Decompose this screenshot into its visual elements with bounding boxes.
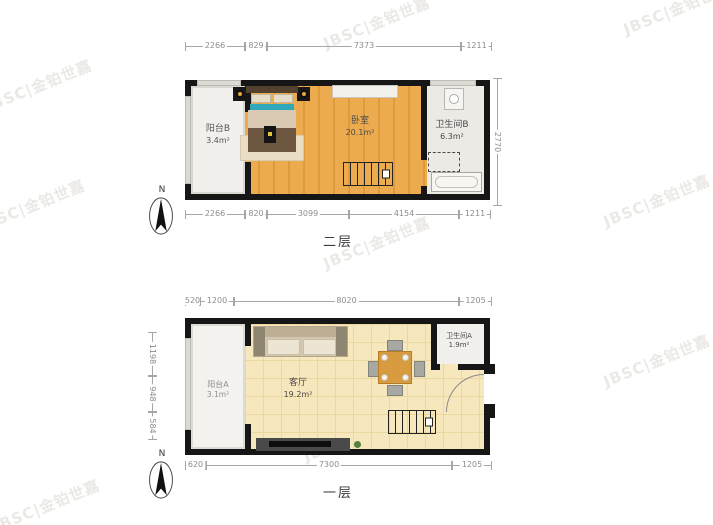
room-area: 3.4m² xyxy=(191,136,245,146)
dim-value: 1205 xyxy=(463,297,487,305)
dim-segment: 948 xyxy=(146,376,158,412)
lower-wall-balcony-top xyxy=(245,324,251,346)
nightstand-lamp-icon xyxy=(233,87,246,101)
room-area: 20.1m² xyxy=(318,128,402,138)
floor-label-1f: 一层 xyxy=(300,482,376,501)
lower-wall-bathroom-bottom-a xyxy=(431,364,440,370)
entry-frame-stub-top xyxy=(484,364,495,374)
lower-wall-balcony-bottom xyxy=(245,424,251,449)
dim-segment: 3099 xyxy=(267,208,349,220)
dim-value: 7373 xyxy=(352,42,376,50)
dining-table xyxy=(378,351,412,384)
dim-segment: 620 xyxy=(185,459,206,471)
upper-wall-balcony-bottom xyxy=(245,162,251,194)
compass-icon xyxy=(147,460,175,500)
dim-value: 1198 xyxy=(148,342,156,366)
watermark-text: JBSC|金铂世嘉 xyxy=(0,175,88,237)
dim-value: 7300 xyxy=(317,461,341,469)
room-area: 6.3m² xyxy=(424,132,480,142)
dim-value: 1200 xyxy=(205,297,229,305)
dim-segment: 584 xyxy=(146,412,158,440)
north-label: N xyxy=(155,185,169,195)
chair xyxy=(387,385,403,396)
sofa xyxy=(253,326,348,357)
room-label-balcony-a: 阳台A 3.1m² xyxy=(191,380,245,400)
floor-label-2f: 二层 xyxy=(300,231,376,250)
room-name: 阳台A xyxy=(191,380,245,390)
dim-segment: 4154 xyxy=(349,208,459,220)
dim-value: 2266 xyxy=(203,210,227,218)
watermark-text: JBSC|金铂世嘉 xyxy=(600,330,713,392)
room-name: 客厅 xyxy=(256,378,340,390)
dim-segment: 1211 xyxy=(459,208,491,220)
dim-segment: 1205 xyxy=(452,459,492,471)
bench xyxy=(332,85,398,98)
entry-frame-stub-bottom xyxy=(484,404,495,418)
door-dashed-outline xyxy=(428,152,460,172)
watermark-text: JBSC|金铂世嘉 xyxy=(0,475,103,525)
room-label-bathroom-a: 卫生间A 1.9m² xyxy=(434,332,484,350)
room-label-living: 客厅 19.2m² xyxy=(256,378,340,400)
dim-segment: 820 xyxy=(245,208,267,220)
dim-value: 1205 xyxy=(460,461,484,469)
dim-value: 829 xyxy=(246,42,265,50)
room-name: 阳台B xyxy=(191,124,245,136)
stairs-icon xyxy=(388,410,436,434)
dim-value: 4154 xyxy=(392,210,416,218)
dim-segment: 520 xyxy=(185,295,200,307)
room-name: 卧室 xyxy=(318,116,402,128)
watermark-text: JBSC|金铂世嘉 xyxy=(0,55,95,117)
room-area: 19.2m² xyxy=(256,390,340,400)
watermark-text: JBSC|金铂世嘉 xyxy=(600,170,713,232)
dim-value: 1211 xyxy=(464,42,488,50)
chair xyxy=(387,340,403,351)
dim-segment: 1211 xyxy=(461,40,492,52)
dim-value: 2266 xyxy=(203,42,227,50)
dim-segment: 2266 xyxy=(185,40,245,52)
bed xyxy=(248,86,296,152)
dim-segment: 2770 xyxy=(491,78,503,206)
watermark-text: JBSC|金铂世嘉 xyxy=(620,0,713,39)
lower-wall-bathroom-bottom-b xyxy=(458,364,484,370)
dim-value: 584 xyxy=(148,416,156,435)
dim-value: 1211 xyxy=(463,210,487,218)
compass-icon xyxy=(147,196,175,236)
dim-segment: 7373 xyxy=(267,40,461,52)
room-label-bedroom: 卧室 20.1m² xyxy=(318,116,402,138)
dim-segment: 8020 xyxy=(234,295,459,307)
tv-cabinet xyxy=(256,438,350,451)
upper-wall-bathroom-stub xyxy=(421,186,427,194)
dim-segment: 1205 xyxy=(459,295,492,307)
room-name: 卫生间B xyxy=(424,120,480,132)
dim-segment: 7300 xyxy=(206,459,452,471)
dim-segment: 1200 xyxy=(200,295,234,307)
stairs-icon xyxy=(343,162,393,186)
dim-value: 820 xyxy=(246,210,265,218)
room-name: 卫生间A xyxy=(434,332,484,341)
dim-value: 620 xyxy=(186,461,205,469)
dim-value: 948 xyxy=(148,384,156,403)
floorplan-canvas: JBSC|金铂世嘉 JBSC|金铂世嘉 JBSC|金铂世嘉 JBSC|金铂世嘉 … xyxy=(0,0,713,525)
north-label: N xyxy=(155,449,169,459)
upper-top-window-balcony xyxy=(197,80,241,86)
dim-value: 2770 xyxy=(493,130,501,154)
sink-icon xyxy=(444,88,464,110)
plant-icon xyxy=(354,441,361,448)
chair xyxy=(414,361,425,377)
nightstand-lamp-icon xyxy=(297,87,310,101)
upper-top-window-bathroom xyxy=(430,80,476,86)
room-area: 3.1m² xyxy=(191,390,245,400)
dim-segment: 1198 xyxy=(146,332,158,376)
dim-segment: 2266 xyxy=(185,208,245,220)
room-label-balcony-b: 阳台B 3.4m² xyxy=(191,124,245,146)
dim-segment: 829 xyxy=(245,40,267,52)
dim-value: 3099 xyxy=(296,210,320,218)
dim-value: 8020 xyxy=(334,297,358,305)
bathtub-icon xyxy=(431,172,482,192)
room-label-bathroom-b: 卫生间B 6.3m² xyxy=(424,120,480,142)
room-area: 1.9m² xyxy=(434,341,484,350)
